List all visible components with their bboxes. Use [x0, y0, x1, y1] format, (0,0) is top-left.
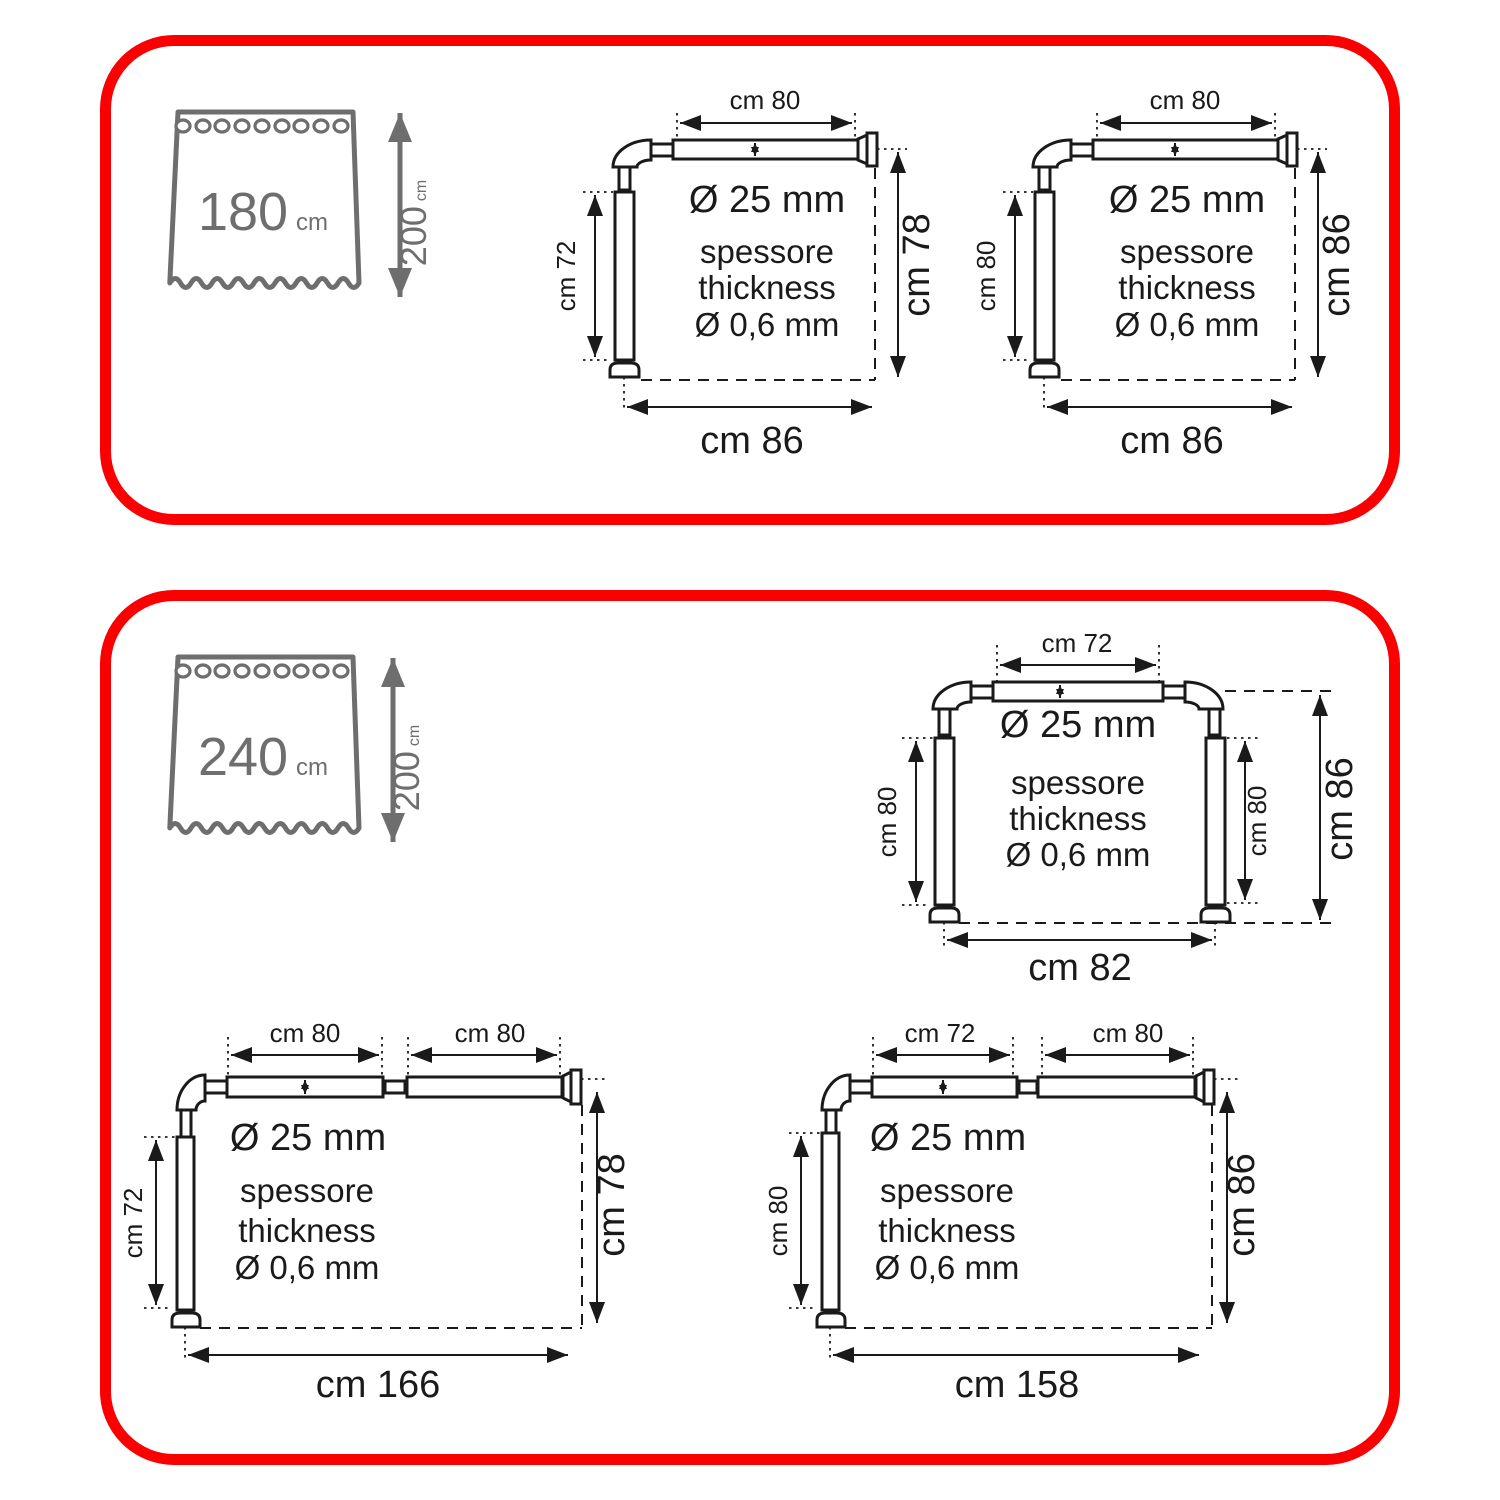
vertical-connector-right	[1209, 709, 1220, 735]
curtain-height-dimension: 200cm	[386, 658, 427, 842]
wall-flange-cap	[1287, 133, 1297, 166]
thickness-line1: spessore	[1011, 764, 1145, 801]
dim-bottom-label: cm 86	[1120, 420, 1223, 462]
vertical-connector	[619, 167, 630, 190]
diameter-label: Ø 25 mm	[1000, 704, 1156, 746]
diameter-label: Ø 25 mm	[230, 1117, 386, 1159]
thickness-line1: spessore	[240, 1172, 374, 1209]
vertical-connector	[1039, 167, 1050, 190]
thickness-line1: spessore	[700, 233, 834, 270]
dim-left-label: cm 72	[551, 241, 581, 312]
elbow-joint	[613, 140, 651, 167]
thickness-line2: thickness	[1118, 269, 1256, 306]
dim-left-label: cm 80	[763, 1186, 793, 1257]
dim-bottom-label: cm 158	[955, 1364, 1080, 1406]
dim-top2-label: cm 80	[455, 1018, 526, 1048]
horizontal-tube-2	[407, 1077, 562, 1097]
dim-top-1: cm 72	[873, 1018, 1013, 1075]
horizontal-tube	[673, 140, 858, 159]
dim-right: cm 78	[896, 152, 938, 377]
vertical-connector	[181, 1110, 191, 1137]
long-rod-158x86-diagram: cm 72 cm 80 cm 80 cm 86 cm 158 Ø 25 mm s…	[775, 1015, 1315, 1415]
thickness-line2: thickness	[1009, 800, 1147, 837]
dim-top-2: cm 80	[1042, 1018, 1193, 1075]
base-flange-left	[930, 908, 959, 922]
connector	[850, 1081, 872, 1093]
dim-top-2: cm 80	[408, 1018, 560, 1075]
dim-bottom-label: cm 82	[1028, 947, 1131, 989]
dim-top: cm 80	[677, 85, 855, 139]
curtain-rings	[176, 120, 348, 132]
dim-left-label: cm 80	[971, 241, 1001, 312]
dim-right: cm 86	[1316, 152, 1358, 377]
dim-top-label: cm 80	[1150, 85, 1221, 115]
dim-right: cm 86	[1221, 1092, 1263, 1323]
dim-top-label: cm 80	[730, 85, 801, 115]
dim-right-label: cm 86	[1221, 1153, 1263, 1256]
connector-left	[971, 686, 993, 698]
long-rod-166x78-diagram: cm 80 cm 80 cm 72 cm 78 cm 166 Ø 25 mm s…	[130, 1015, 670, 1415]
spec-text: Ø 25 mm spessore thickness Ø 0,6 mm	[870, 1117, 1026, 1286]
thickness-line3: Ø 0,6 mm	[235, 1249, 380, 1286]
vertical-tube	[177, 1137, 194, 1310]
dim-top-label: cm 72	[1042, 628, 1113, 658]
dim-bottom: cm 82	[947, 940, 1212, 989]
wall-flange-cap	[1204, 1070, 1214, 1104]
horizontal-tube-1	[872, 1077, 1017, 1097]
spec-text: Ø 25 mm spessore thickness Ø 0,6 mm	[689, 179, 845, 343]
horizontal-tube	[1093, 140, 1278, 159]
dim-top2-label: cm 80	[1093, 1018, 1164, 1048]
dim-top1-label: cm 80	[270, 1018, 341, 1048]
diameter-label: Ø 25 mm	[1109, 179, 1265, 221]
thickness-line1: spessore	[1120, 233, 1254, 270]
base-flange	[172, 1313, 200, 1327]
dim-right-inner-label: cm 80	[1242, 786, 1272, 857]
thickness-line3: Ø 0,6 mm	[1115, 306, 1260, 343]
connector	[205, 1081, 227, 1093]
thickness-line3: Ø 0,6 mm	[695, 306, 840, 343]
horizontal-tube	[993, 682, 1163, 701]
dim-bottom: cm 158	[833, 1355, 1199, 1406]
dim-bottom: cm 86	[627, 407, 872, 462]
vertical-connector-left	[939, 709, 950, 735]
dim-top: cm 80	[1097, 85, 1275, 139]
dim-right-outer-label: cm 86	[1319, 757, 1361, 860]
dim-left-label: cm 80	[872, 787, 902, 858]
dim-right-outer: cm 86	[1319, 695, 1361, 920]
thickness-line2: thickness	[878, 1212, 1016, 1249]
thickness-line3: Ø 0,6 mm	[1006, 836, 1151, 873]
corner-rod-86x78-diagram: cm 80 cm 72 cm 78 cm 86 Ø 25 mm spessore…	[555, 85, 955, 465]
base-flange	[1030, 363, 1059, 377]
base-flange	[610, 363, 639, 377]
rod-graphic	[172, 1070, 581, 1327]
dim-right-label: cm 86	[1316, 213, 1358, 316]
dim-left: cm 80	[872, 738, 935, 905]
vertical-tube	[615, 192, 634, 360]
spec-text: Ø 25 mm spessore thickness Ø 0,6 mm	[1000, 704, 1156, 873]
dim-top1-label: cm 72	[905, 1018, 976, 1048]
curtain-240-icon: 240cm 200cm	[150, 640, 490, 900]
spec-text: Ø 25 mm spessore thickness Ø 0,6 mm	[230, 1117, 386, 1286]
thickness-line3: Ø 0,6 mm	[875, 1249, 1020, 1286]
elbow-joint	[1033, 140, 1071, 167]
vertical-tube	[1035, 192, 1054, 360]
curtain-180-icon: 180cm 200cm	[150, 95, 490, 355]
diameter-label: Ø 25 mm	[870, 1117, 1026, 1159]
dim-top-1: cm 80	[228, 1018, 382, 1075]
dim-left: cm 72	[551, 192, 613, 360]
dim-left: cm 80	[971, 192, 1033, 360]
mid-connector	[1019, 1081, 1037, 1093]
dim-bottom: cm 166	[188, 1355, 568, 1406]
curtain-rings	[176, 665, 348, 677]
corner-rod-86x86-diagram: cm 80 cm 80 cm 86 cm 86 Ø 25 mm spessore…	[975, 85, 1375, 465]
thickness-line2: thickness	[238, 1212, 376, 1249]
vertical-tube-right	[1206, 738, 1225, 905]
dim-right: cm 78	[591, 1092, 633, 1323]
mid-connector	[385, 1081, 405, 1093]
diameter-label: Ø 25 mm	[689, 179, 845, 221]
thickness-line2: thickness	[698, 269, 836, 306]
dim-bottom-label: cm 86	[700, 420, 803, 462]
elbow-joint-right	[1185, 682, 1223, 709]
vertical-tube-left	[935, 738, 954, 905]
elbow-joint-left	[933, 682, 971, 709]
spec-text: Ø 25 mm spessore thickness Ø 0,6 mm	[1109, 179, 1265, 343]
rod-graphic	[817, 1070, 1214, 1327]
elbow-joint	[822, 1075, 850, 1110]
dim-bottom-label: cm 166	[316, 1364, 441, 1406]
base-flange	[817, 1313, 845, 1327]
u-rod-82x86-diagram: cm 72 cm 80 cm 80 cm 86 cm 82 Ø 25 mm sp…	[870, 625, 1390, 995]
vertical-connector	[826, 1110, 836, 1133]
horizontal-tube-2	[1038, 1077, 1195, 1097]
connector	[1071, 144, 1093, 156]
dim-left-label: cm 72	[118, 1188, 148, 1259]
wall-flange-cap	[571, 1070, 581, 1104]
base-flange-right	[1201, 908, 1230, 922]
vertical-tube	[822, 1133, 839, 1310]
connector-right	[1163, 686, 1185, 698]
dim-right-label: cm 78	[591, 1153, 633, 1256]
dim-top: cm 72	[997, 628, 1159, 681]
dim-right-label: cm 78	[896, 213, 938, 316]
dim-bottom: cm 86	[1047, 407, 1292, 462]
dim-right-inner: cm 80	[1227, 738, 1272, 903]
elbow-joint	[177, 1075, 205, 1110]
wall-flange-cap	[867, 133, 877, 166]
thickness-line1: spessore	[880, 1172, 1014, 1209]
curtain-height-dimension: 200cm	[393, 113, 434, 297]
connector	[651, 144, 673, 156]
